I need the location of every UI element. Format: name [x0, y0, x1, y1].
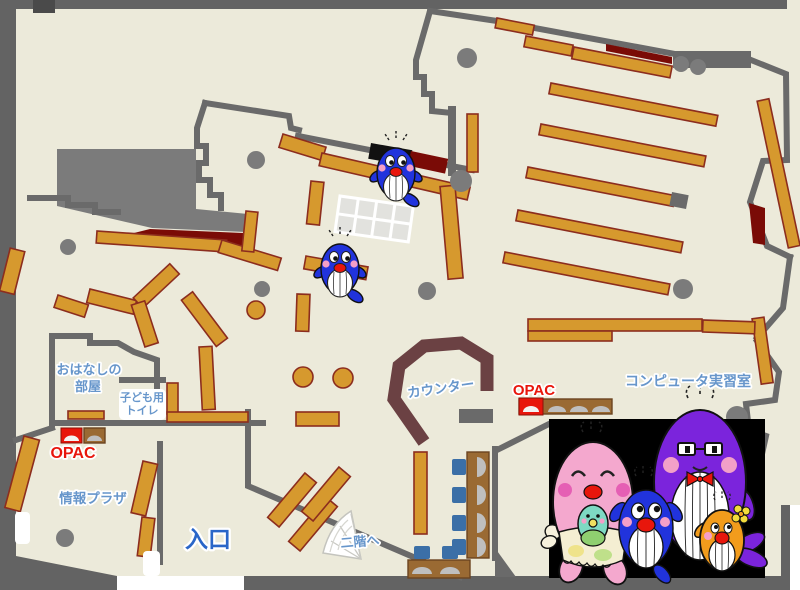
library-floor-map: おはなしの 部屋 子ども用 トイレ OPAC OPAC 情報プラザ 入口 カウン…: [0, 0, 800, 590]
round-table: [333, 368, 353, 388]
bookshelf: [296, 294, 310, 331]
chair: [452, 459, 466, 475]
pillar: [247, 151, 265, 169]
pillar: [56, 529, 74, 547]
round-table: [293, 367, 313, 387]
label-storytelling-room: おはなしの: [56, 362, 121, 377]
pillar: [690, 59, 706, 75]
floor-map-canvas: おはなしの 部屋 子ども用 トイレ OPAC OPAC 情報プラザ 入口 カウン…: [0, 0, 800, 590]
outside-corner: [790, 505, 800, 590]
pillar: [418, 282, 436, 300]
floor-edge: [787, 0, 800, 9]
bookshelf: [528, 319, 702, 331]
bookshelf: [414, 452, 427, 534]
bookshelf: [199, 346, 215, 410]
bookshelf: [703, 320, 755, 334]
label-opac-right: OPAC: [513, 382, 555, 399]
flower-icon: [732, 505, 750, 523]
pillar: [254, 281, 270, 297]
bookshelf: [296, 412, 339, 426]
label-computer-room: コンピュータ実習室: [625, 373, 751, 389]
bookshelf: [68, 411, 104, 419]
bookshelf: [167, 412, 248, 422]
door-gap: [15, 512, 30, 544]
chair: [452, 487, 466, 503]
label-kids-toilet: 子ども用: [120, 391, 164, 404]
pillar: [673, 279, 693, 299]
wall: [0, 0, 787, 9]
wall: [244, 576, 790, 590]
pillar: [673, 56, 689, 72]
door-gap: [143, 551, 160, 576]
label-storytelling-room-2: 部屋: [75, 379, 101, 394]
round-table: [247, 301, 265, 319]
pillar: [60, 239, 76, 255]
chair: [452, 515, 466, 531]
label-entrance: 入口: [185, 526, 231, 552]
bookshelf: [167, 383, 178, 414]
pillar: [450, 170, 472, 192]
bookshelf: [467, 114, 478, 172]
wall: [33, 0, 55, 13]
bookshelf: [528, 331, 612, 341]
wall: [781, 505, 790, 590]
opac-right-terminals: [519, 398, 612, 415]
wall: [459, 409, 493, 423]
pillar: [457, 48, 477, 68]
chair: [442, 546, 458, 559]
label-opac-left: OPAC: [50, 445, 95, 462]
chair: [414, 546, 430, 559]
teal-baby-whale-icon: [578, 505, 608, 546]
label-kids-toilet-2: トイレ: [126, 404, 159, 417]
label-info-plaza: 情報プラザ: [59, 490, 127, 506]
